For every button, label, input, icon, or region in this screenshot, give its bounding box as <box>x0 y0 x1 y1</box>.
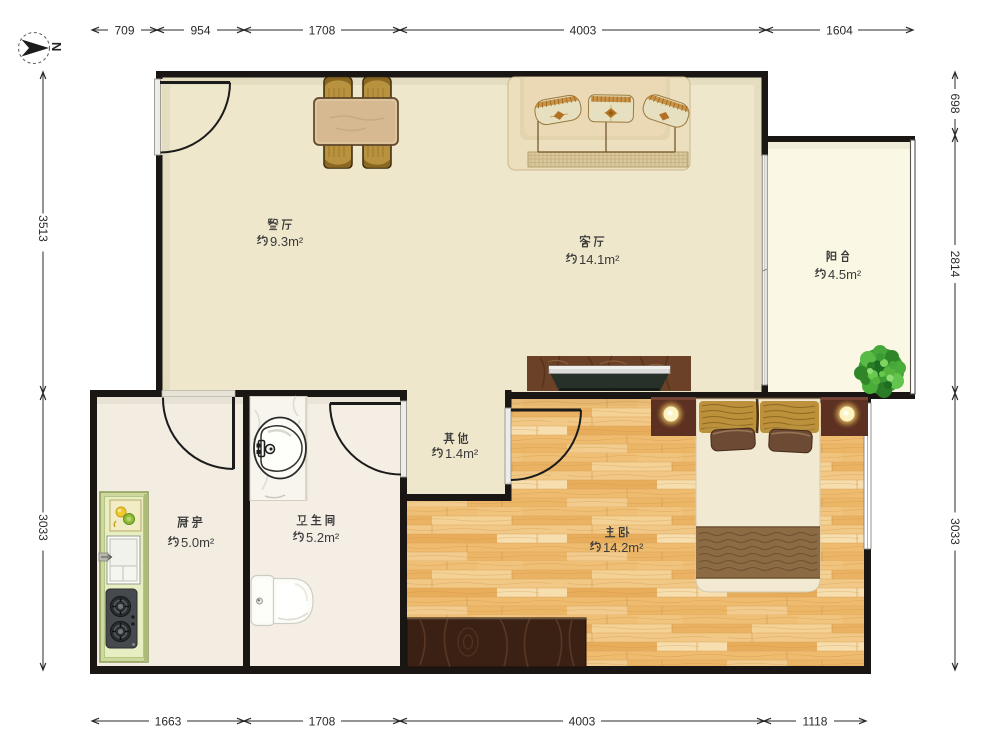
svg-text:1.4m²: 1.4m² <box>445 446 479 461</box>
svg-text:3033: 3033 <box>36 514 50 541</box>
svg-text:1708: 1708 <box>309 24 336 38</box>
svg-text:14.1m²: 14.1m² <box>579 252 620 267</box>
svg-text:1663: 1663 <box>155 715 182 729</box>
svg-text:4003: 4003 <box>569 715 596 729</box>
svg-text:9.3m²: 9.3m² <box>270 234 304 249</box>
svg-text:2814: 2814 <box>948 251 962 278</box>
svg-text:5.2m²: 5.2m² <box>306 530 340 545</box>
svg-text:709: 709 <box>114 24 134 38</box>
svg-text:5.0m²: 5.0m² <box>181 535 215 550</box>
svg-text:698: 698 <box>948 93 962 113</box>
svg-text:4.5m²: 4.5m² <box>828 267 862 282</box>
svg-text:N: N <box>49 42 64 51</box>
svg-text:3033: 3033 <box>948 518 962 545</box>
svg-text:14.2m²: 14.2m² <box>603 540 644 555</box>
svg-text:1708: 1708 <box>309 715 336 729</box>
svg-text:1604: 1604 <box>826 24 853 38</box>
svg-text:3513: 3513 <box>36 215 50 242</box>
svg-text:954: 954 <box>190 24 210 38</box>
svg-text:1118: 1118 <box>803 715 828 729</box>
svg-text:4003: 4003 <box>570 24 597 38</box>
